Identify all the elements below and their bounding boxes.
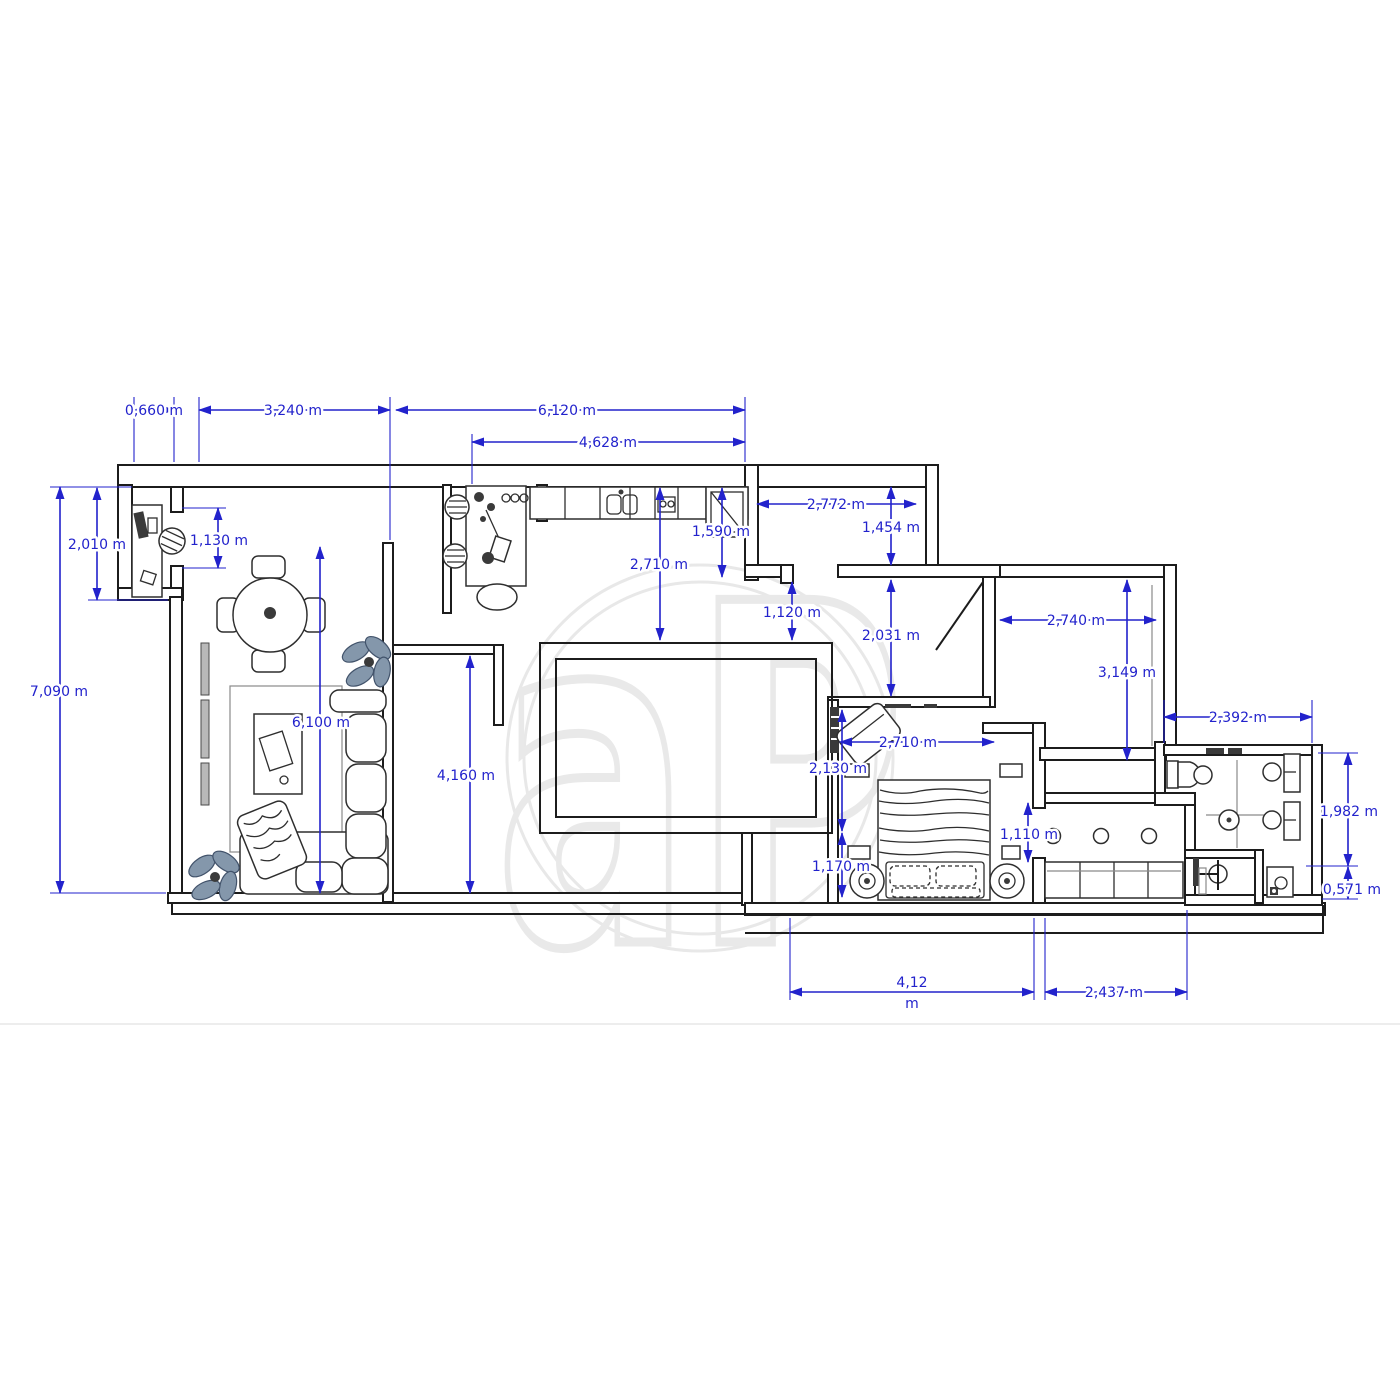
dining-chair [252,650,285,672]
dim-label-2010: 2,010 m [68,537,126,553]
dim-label-4628: 4,628 m [579,435,637,451]
dim-label-1170: 1,170 m [812,859,870,875]
dim-label-3149: 3,149 m [1098,665,1156,681]
door-track [924,704,937,708]
dim-label-1590: 1,590 m [692,524,750,540]
dim-1982: 1,982 m [1320,753,1378,866]
dim-label-0660: 0,660 m [125,403,183,419]
dim-label-2710-bedroom: 2,710 m [879,735,937,751]
dim-4628: 4,628 m [472,435,745,451]
dim-label-2740: 2,740 m [1047,613,1105,629]
office-chair [445,495,469,519]
dim-0571: 0,571 m [1323,867,1381,899]
dim-label-412-value: 4,12 [896,975,927,991]
dining-chair [252,556,285,578]
dim-label-4160: 4,160 m [437,768,495,784]
dim-label-2031: 2,031 m [862,628,920,644]
dim-label-1120: 1,120 m [763,605,821,621]
dim-2740: 2,740 m [1000,613,1156,629]
sofa-corner-cushion [342,858,388,894]
dim-label-6100: 6,100 m [292,715,350,731]
sofa-cushion [346,764,386,812]
utility-basin [1199,860,1227,894]
dim-label-2710-kitchen: 2,710 m [630,557,688,573]
dim-label-6120: 6,120 m [538,403,596,419]
pouf [990,864,1024,898]
computer-gear [480,516,486,522]
dim-label-412-unit: m [905,996,919,1012]
dim-3240: 3,240 m [199,403,390,419]
dim-6120: 6,120 m [396,403,745,419]
office-chair [443,544,467,568]
computer-gear [474,492,484,502]
dim-label-3240: 3,240 m [264,403,322,419]
dim-label-2130: 2,130 m [809,761,867,777]
tv-sideboard [201,700,209,758]
downlight-icon [1142,829,1157,844]
dim-2437: 2,437 m [1045,985,1187,1001]
dim-0660: 0,660 m [125,403,183,419]
dim-label-1130: 1,130 m [190,533,248,549]
dim-label-2772: 2,772 m [807,497,865,513]
floor-plan-canvas: aP [0,0,1400,1400]
desk-item [482,552,494,564]
nightstand [1000,764,1022,777]
vanity-sink [1263,802,1300,840]
vanity-sink [1263,754,1300,792]
table-center [264,607,276,619]
dim-4160: 4,160 m [437,656,495,893]
dim-label-2392: 2,392 m [1209,710,1267,726]
washing-machine [1267,867,1293,897]
sofa-cushion [346,714,386,762]
window-hatch [830,707,839,753]
utility-hatch [1193,858,1199,886]
nightstand [1002,846,1020,859]
tv-sideboard [201,643,209,695]
bathroom-window [1206,748,1224,754]
dim-2392: 2,392 m [1164,710,1312,726]
sofa-armrest [330,690,386,712]
dim-1130: 1,130 m [190,508,248,568]
faucet-icon [619,490,624,495]
door-track [885,704,911,708]
toilet [1167,761,1212,788]
dim-label-2437: 2,437 m [1085,985,1143,1001]
dim-label-1110: 1,110 m [1000,827,1058,843]
downlight-icon [1094,829,1109,844]
sofa-cushion [346,814,386,858]
door-leaf [936,582,983,650]
sofa-cushion [296,862,342,892]
dim-label-1982: 1,982 m [1320,804,1378,820]
bed [878,780,990,900]
dim-3149: 3,149 m [1098,580,1156,760]
computer-gear [487,503,495,511]
tv-sideboard [201,763,209,805]
nightstand [848,846,870,859]
floor-plan-page: aP [0,0,1400,1400]
dim-label-7090: 7,090 m [30,684,88,700]
dim-label-0571: 0,571 m [1323,882,1381,898]
bathroom-window [1228,748,1242,754]
stool [477,584,517,610]
dim-label-1454: 1,454 m [862,520,920,536]
